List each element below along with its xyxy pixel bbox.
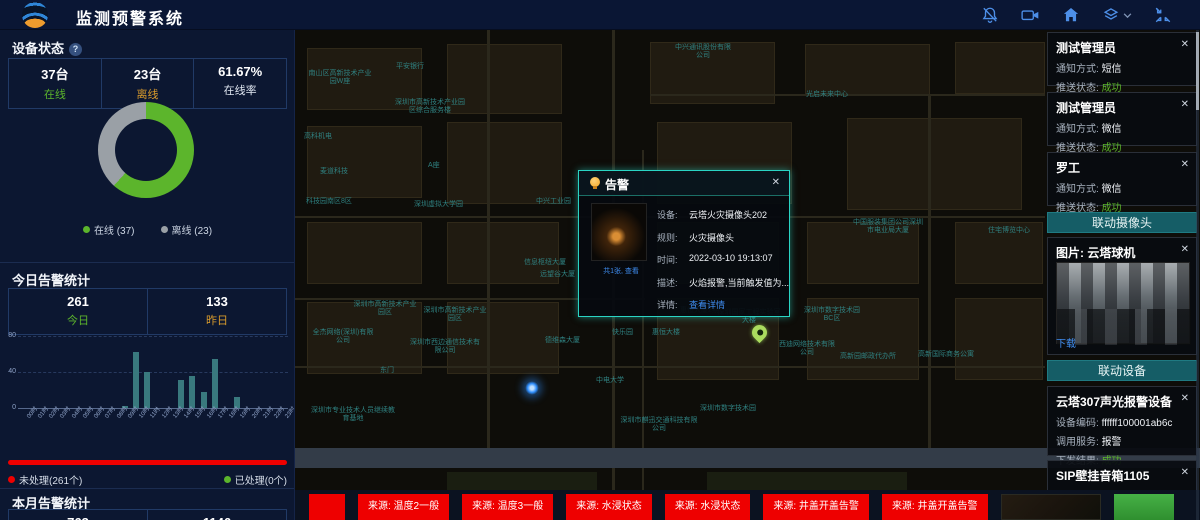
- stat-month-1: 763: [9, 510, 147, 520]
- right-scrollbar[interactable]: [1196, 30, 1199, 520]
- ticker-alert[interactable]: 来源: 井盖开盖告警: [763, 494, 869, 520]
- bar: [212, 359, 218, 408]
- close-icon[interactable]: ✕: [1181, 467, 1189, 478]
- left-panel: 设备状态? 37台 在线 23台 离线 61.67% 在线率 在线 (37) 离…: [0, 30, 295, 520]
- layers-icon[interactable]: [1102, 6, 1132, 24]
- home-icon[interactable]: [1062, 6, 1080, 24]
- ticker-alert[interactable]: 来源: 井盖开盖告警: [882, 494, 988, 520]
- fullscreen-icon[interactable]: [1154, 6, 1172, 24]
- close-icon[interactable]: ✕: [1181, 99, 1189, 110]
- hour-x-labels: 00时01时02时03时04时05时06时07时08时09时10时11时12时1…: [0, 412, 295, 434]
- legend-processed: 已处理(0个): [224, 472, 287, 487]
- app-title: 监测预警系统: [76, 5, 184, 29]
- video-camera-icon[interactable]: [1021, 6, 1040, 24]
- map-label: 惠恒大楼: [652, 329, 680, 337]
- map-label: 住宅博览中心: [988, 227, 1030, 235]
- bar: [178, 380, 184, 408]
- map-label: 高新园邮政代办所: [840, 353, 896, 361]
- map-label: 西迪网络技术有限公司: [778, 341, 836, 357]
- stat-offline: 23台 离线: [101, 59, 194, 108]
- chevron-down-icon: [1123, 12, 1132, 19]
- map-label: 东门: [380, 367, 394, 375]
- map-label: A座: [428, 162, 440, 170]
- bar: [144, 372, 150, 408]
- popup-time: 2022-03-10 19:13:07: [689, 253, 773, 263]
- device-card: ✕ 云塔307声光报警设备 设备编码: ffffff100001ab6c 调用服…: [1047, 386, 1197, 456]
- map-label: 深圳市专业技术人员继续教育基地: [310, 407, 396, 423]
- thumbnail-caption[interactable]: 共1张, 查看: [591, 266, 651, 276]
- popup-description: 火焰报警,当前触发值为...: [689, 276, 789, 289]
- map-label: 快乐园: [612, 329, 633, 337]
- map-label: 全杰网络(深圳)有限公司: [312, 329, 374, 345]
- stat-month-2: 1146: [147, 510, 286, 520]
- close-icon[interactable]: ✕: [1181, 39, 1189, 50]
- map-alert-dot[interactable]: [525, 381, 539, 395]
- legend-offline: 离线 (23): [161, 222, 213, 237]
- map-label: 远望谷大厦: [540, 271, 575, 279]
- map-label: 深圳市数字技术园BC区: [800, 307, 864, 323]
- stat-today: 261 今日: [9, 289, 147, 334]
- month-alerts-table: 763 1146: [8, 509, 287, 520]
- ticker-alert[interactable]: 来源: 水浸状态: [665, 494, 751, 520]
- popup-rule: 火灾摄像头: [689, 231, 734, 244]
- stat-online: 37台 在线: [9, 59, 101, 108]
- map-label: 南山区高新技术产业园W座: [308, 70, 372, 86]
- bell-off-icon[interactable]: [981, 6, 999, 24]
- map-label: 深圳市数字技术园: [700, 405, 756, 413]
- ticker-alert[interactable]: 来源: 水浸状态: [566, 494, 652, 520]
- popup-device: 云塔火灾摄像头202: [689, 208, 767, 221]
- popup-close-icon[interactable]: ✕: [772, 177, 780, 188]
- map-label: 高科机电: [304, 133, 332, 141]
- map-label: 中兴通讯股份有限公司: [672, 44, 734, 60]
- stat-online-rate: 61.67% 在线率: [193, 59, 286, 108]
- alert-ticker: 来源: 温度2一般来源: 温度3一般来源: 水浸状态来源: 水浸状态来源: 井盖…: [295, 490, 1200, 520]
- map-label: 深圳市西边通信技术有限公司: [408, 339, 482, 355]
- map-label: 平安银行: [396, 63, 424, 71]
- bar: [133, 352, 139, 408]
- app-logo-icon: [22, 2, 48, 28]
- alarm-bulb-icon: [590, 177, 600, 187]
- stat-yesterday: 133 昨日: [147, 289, 286, 334]
- linked-cameras-header: 联动摄像头: [1047, 212, 1197, 233]
- notification-card: ✕ 罗工 通知方式: 微信 推送状态: 成功: [1047, 152, 1197, 206]
- close-icon[interactable]: ✕: [1181, 393, 1189, 404]
- notification-card: ✕ 测试管理员 通知方式: 微信 推送状态: 成功: [1047, 92, 1197, 146]
- map-label: 光启未来中心: [806, 91, 848, 99]
- map-label: 中电大学: [596, 377, 624, 385]
- download-link[interactable]: 下载: [1056, 335, 1076, 350]
- alert-popup: 告警 ✕ 共1张, 查看 设备: 云塔火灾摄像头202 规则: 火灾摄像头 时间…: [578, 170, 790, 317]
- map-label: 深圳市高新技术产业园区综合服务楼: [392, 99, 468, 115]
- ticker-camera-thumbnail[interactable]: [1001, 494, 1101, 520]
- close-icon[interactable]: ✕: [1181, 159, 1189, 170]
- ticker-alert[interactable]: [309, 494, 345, 520]
- map-label: 中兴工业园: [536, 198, 571, 206]
- popup-title: 告警: [605, 176, 629, 193]
- today-alerts-title: 今日告警统计: [12, 270, 90, 289]
- linked-devices-header: 联动设备: [1047, 360, 1197, 381]
- legend-online: 在线 (37): [83, 222, 135, 237]
- close-icon[interactable]: ✕: [1181, 244, 1189, 255]
- ticker-green-thumbnail[interactable]: [1114, 494, 1174, 520]
- popup-detail-link[interactable]: 查看详情: [689, 298, 725, 311]
- map-label: 深圳市麒迅交通科技有限公司: [620, 417, 698, 433]
- map-label: 深圳市高新技术产业园区: [422, 307, 488, 323]
- notification-card: ✕ 测试管理员 通知方式: 短信 推送状态: 成功: [1047, 32, 1197, 86]
- map-label: 深圳市高新技术产业园区: [352, 301, 418, 317]
- ticker-alert[interactable]: 来源: 温度2一般: [358, 494, 449, 520]
- alert-snapshot-thumbnail[interactable]: [591, 203, 647, 261]
- legend-unprocessed: 未处理(261个): [8, 472, 82, 487]
- help-icon[interactable]: ?: [69, 43, 82, 56]
- unprocessed-progress-bar: [8, 460, 287, 465]
- processing-legend: 未处理(261个) 已处理(0个): [8, 472, 287, 487]
- map-label: 深圳虚拟大学园: [414, 201, 463, 209]
- map-label: 德维森大厦: [545, 337, 580, 345]
- ticker-alert[interactable]: 来源: 温度3一般: [462, 494, 553, 520]
- camera-card: ✕ 图片: 云塔球机 下载: [1047, 237, 1197, 355]
- device-status-donut-chart: [98, 102, 194, 198]
- map-label: 信息枢纽大厦: [524, 259, 566, 267]
- map-label: 麦道科技: [320, 168, 348, 176]
- app-header: 监测预警系统: [0, 0, 1200, 30]
- bar: [189, 376, 195, 408]
- donut-legend: 在线 (37) 离线 (23): [0, 222, 295, 237]
- map-label: 中国服装集团公司深圳市电业局大厦: [852, 219, 924, 235]
- map-label: 科技园南区8区: [306, 198, 352, 206]
- hour-bars: [0, 336, 295, 408]
- today-alerts-table: 261 今日 133 昨日: [8, 288, 287, 335]
- camera-snapshot-image[interactable]: [1056, 262, 1190, 344]
- map-label: 高新国际商务公寓: [918, 351, 974, 359]
- device-status-title: 设备状态?: [12, 38, 82, 57]
